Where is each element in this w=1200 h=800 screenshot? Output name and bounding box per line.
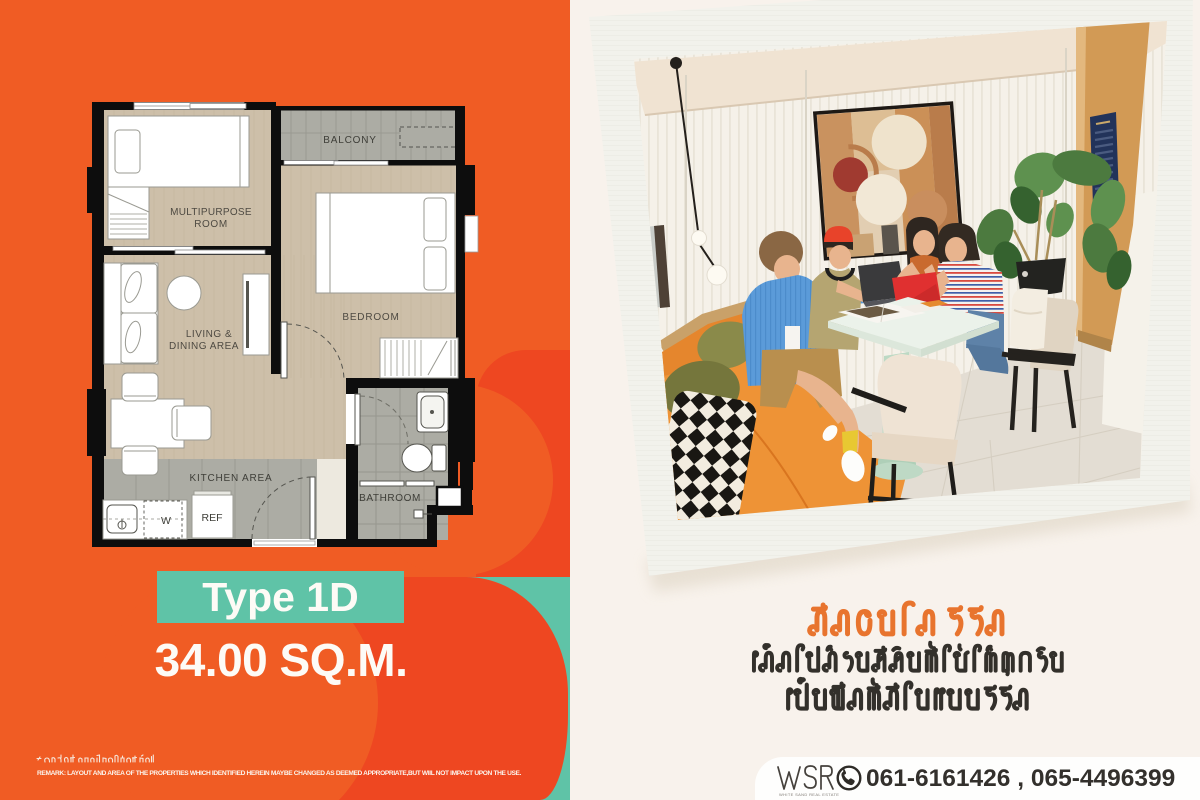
svg-text:ROOM: ROOM	[194, 219, 228, 230]
svg-text:REF: REF	[202, 512, 223, 524]
svg-text:WHITE SAND REAL ESTATE: WHITE SAND REAL ESTATE	[779, 792, 839, 797]
svg-text:LIVING &: LIVING &	[186, 329, 232, 340]
svg-text:BATHROOM: BATHROOM	[359, 493, 421, 504]
svg-text:BEDROOM: BEDROOM	[342, 312, 399, 323]
svg-text:MULTIPURPOSE: MULTIPURPOSE	[170, 207, 252, 218]
svg-text:W: W	[161, 515, 171, 527]
svg-text:DINING AREA: DINING AREA	[169, 341, 239, 352]
svg-text:BALCONY: BALCONY	[323, 135, 376, 146]
svg-text:KITCHEN AREA: KITCHEN AREA	[190, 473, 273, 484]
